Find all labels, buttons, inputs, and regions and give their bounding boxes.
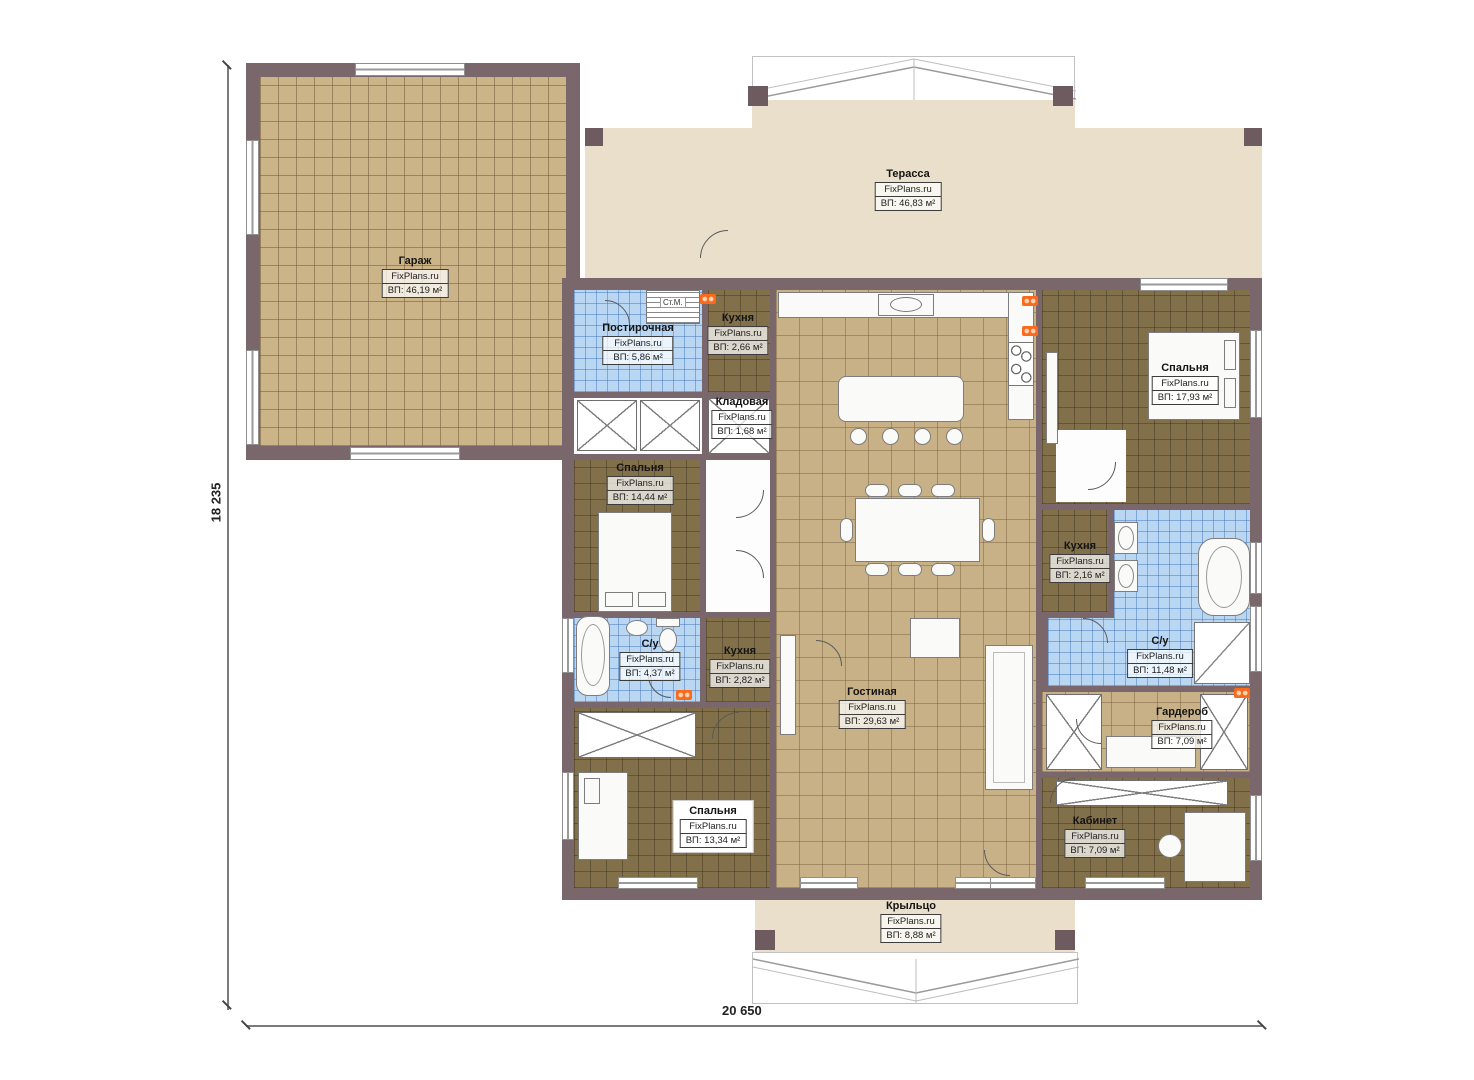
bathtub-right-basin <box>1206 546 1242 608</box>
room-label-kitchen-right: Кухня FixPlans.ru ВП: 2,16 м² <box>1049 540 1110 583</box>
room-label-living: Гостиная FixPlans.ru ВП: 29,63 м² <box>839 686 906 729</box>
room-label-office: Кабинет FixPlans.ru ВП: 7,09 м² <box>1064 815 1125 858</box>
brand-label: FixPlans.ru <box>880 914 941 929</box>
room-area: ВП: 14,44 м² <box>607 491 674 505</box>
room-label-terrace: Терасса FixPlans.ru ВП: 46,83 м² <box>875 168 942 211</box>
dining-chair <box>931 484 955 497</box>
room-name: Кабинет <box>1064 815 1125 827</box>
room-label-laundry: Постирочная FixPlans.ru ВП: 5,86 м² <box>602 322 673 365</box>
brand-label: FixPlans.ru <box>875 182 942 197</box>
room-name: Спальня <box>1152 362 1219 374</box>
room-label-pantry: Кладовая FixPlans.ru ВП: 1,68 м² <box>711 396 772 439</box>
corridor-floor <box>706 460 770 612</box>
office-window-side <box>1250 795 1262 861</box>
office-desk <box>1184 812 1246 882</box>
bathtub-left-basin <box>581 624 605 686</box>
room-label-porch: Крыльцо FixPlans.ru ВП: 8,88 м² <box>880 900 941 943</box>
pillow <box>638 592 666 607</box>
dimension-width-label: 20 650 <box>722 1003 762 1018</box>
floor-plan: 18 235 20 650 <box>0 0 1474 1080</box>
bedroom-bottom-window <box>618 877 698 889</box>
room-name: Кухня <box>707 312 768 324</box>
radiator <box>1022 296 1038 306</box>
bedroom-bottom-window-left <box>562 772 574 840</box>
room-name: Кухня <box>709 645 770 657</box>
brand-label: FixPlans.ru <box>619 652 680 667</box>
sink-right-2-basin <box>1118 564 1134 588</box>
room-area: ВП: 1,68 м² <box>711 425 772 439</box>
brand-label: FixPlans.ru <box>602 336 673 351</box>
room-label-bathroom-right: С/у FixPlans.ru ВП: 11,48 м² <box>1127 635 1193 678</box>
room-label-wardrobe: Гардероб FixPlans.ru ВП: 7,09 м² <box>1151 706 1212 749</box>
dimension-line-vertical <box>227 65 229 1010</box>
room-area: ВП: 4,37 м² <box>619 667 680 681</box>
dining-chair <box>865 563 889 576</box>
room-name: Спальня <box>680 805 747 817</box>
pillow <box>605 592 633 607</box>
office-window <box>1085 877 1165 889</box>
garage-window-left-upper <box>246 140 259 235</box>
pillow <box>1224 340 1236 370</box>
terrace-post <box>1053 86 1073 106</box>
bathroom-right-floor-ext <box>1048 618 1114 686</box>
room-name: С/у <box>1127 635 1193 647</box>
garage-window-top <box>355 63 465 76</box>
bathroom-left-window <box>562 618 574 673</box>
brand-label: FixPlans.ru <box>1064 829 1125 844</box>
brand-label: FixPlans.ru <box>709 659 770 674</box>
radiator <box>1234 688 1250 698</box>
room-name: Спальня <box>607 462 674 474</box>
office-shelf-xbox <box>1056 780 1228 806</box>
coffee-table <box>910 618 960 658</box>
porch-post <box>1055 930 1075 950</box>
sink-right-1-basin <box>1118 526 1134 550</box>
porch-door-opening <box>990 877 1036 889</box>
living-window-1 <box>800 877 858 889</box>
room-name: Гостиная <box>839 686 906 698</box>
tv-stand <box>780 635 796 735</box>
terrace-post <box>748 86 768 106</box>
dining-chair <box>898 484 922 497</box>
dining-chair <box>982 518 995 542</box>
bedroom-bottom-closet-xbox <box>578 712 696 758</box>
room-area: ВП: 8,88 м² <box>880 929 941 943</box>
brand-label: FixPlans.ru <box>607 476 674 491</box>
room-area: ВП: 2,82 м² <box>709 674 770 688</box>
room-area: ВП: 2,16 м² <box>1049 569 1110 583</box>
terrace-roof-outline <box>752 56 1075 102</box>
room-name: Крыльцо <box>880 900 941 912</box>
kitchen-island <box>838 376 964 422</box>
shower <box>1194 622 1250 684</box>
room-name: Гардероб <box>1151 706 1212 718</box>
bathroom-right-window-2 <box>1250 606 1262 672</box>
brand-label: FixPlans.ru <box>382 269 449 284</box>
bedroom-right-window-side <box>1250 330 1262 418</box>
room-name: Кладовая <box>711 396 772 408</box>
room-label-bedroom-left: Спальня FixPlans.ru ВП: 14,44 м² <box>607 462 674 505</box>
dresser <box>1046 352 1058 444</box>
brand-label: FixPlans.ru <box>1049 554 1110 569</box>
brand-label: FixPlans.ru <box>1127 649 1193 664</box>
porch-post <box>755 930 775 950</box>
bar-stool <box>850 428 867 445</box>
brand-label: FixPlans.ru <box>711 410 772 425</box>
room-area: ВП: 13,34 м² <box>680 834 747 848</box>
dining-chair <box>865 484 889 497</box>
terrace-post <box>585 128 603 146</box>
room-area: ВП: 46,19 м² <box>382 284 449 298</box>
terrace-post <box>1244 128 1262 146</box>
brand-label: FixPlans.ru <box>839 700 906 715</box>
washing-machine-label: Ст.М. <box>660 297 686 308</box>
terrace-floor-left <box>585 128 755 285</box>
room-label-bedroom-bottom: Спальня FixPlans.ru ВП: 13,34 м² <box>673 800 754 853</box>
room-name: Терасса <box>875 168 942 180</box>
toilet-tank <box>656 618 680 627</box>
garage-window-bottom <box>350 447 460 460</box>
pillow <box>1224 378 1236 408</box>
bar-stool <box>882 428 899 445</box>
room-label-bedroom-right: Спальня FixPlans.ru ВП: 17,93 м² <box>1152 362 1219 405</box>
terrace-floor-right <box>1072 128 1262 285</box>
bedroom-right-window <box>1140 278 1228 291</box>
room-area: ВП: 7,09 м² <box>1151 735 1212 749</box>
brand-label: FixPlans.ru <box>1152 376 1219 391</box>
porch-roof-outline <box>752 952 1078 1004</box>
terrace-roof-lines <box>753 57 1076 103</box>
closet-xbox <box>640 400 700 451</box>
room-area: ВП: 17,93 м² <box>1152 391 1219 405</box>
room-area: ВП: 5,86 м² <box>602 351 673 365</box>
room-area: ВП: 2,66 м² <box>707 341 768 355</box>
closet-xbox <box>577 400 637 451</box>
sink-left-bath <box>626 620 648 636</box>
room-area: ВП: 11,48 м² <box>1127 664 1193 678</box>
radiator <box>676 690 692 700</box>
dining-table <box>855 498 980 562</box>
dining-chair <box>898 563 922 576</box>
porch-roof-lines <box>753 953 1079 1005</box>
room-name: Постирочная <box>602 322 673 334</box>
dining-chair <box>931 563 955 576</box>
room-area: ВП: 29,63 м² <box>839 715 906 729</box>
room-label-kitchen-top: Кухня FixPlans.ru ВП: 2,66 м² <box>707 312 768 355</box>
dimension-height-label: 18 235 <box>208 483 223 523</box>
room-name: Кухня <box>1049 540 1110 552</box>
bar-stool <box>946 428 963 445</box>
dining-chair <box>840 518 853 542</box>
room-name: С/у <box>619 638 680 650</box>
radiator <box>1022 326 1038 336</box>
radiator <box>700 294 716 304</box>
room-area: ВП: 7,09 м² <box>1064 844 1125 858</box>
stove-icon <box>1008 342 1034 386</box>
dimension-line-horizontal <box>246 1025 1262 1027</box>
room-label-bathroom-left: С/у FixPlans.ru ВП: 4,37 м² <box>619 638 680 681</box>
room-name: Гараж <box>382 255 449 267</box>
brand-label: FixPlans.ru <box>707 326 768 341</box>
brand-label: FixPlans.ru <box>1151 720 1212 735</box>
room-area: ВП: 46,83 м² <box>875 197 942 211</box>
brand-label: FixPlans.ru <box>680 819 747 834</box>
bathroom-right-window-1 <box>1250 542 1262 594</box>
kitchen-sink-basin <box>890 297 922 312</box>
sofa-cushions <box>993 652 1025 783</box>
room-label-garage: Гараж FixPlans.ru ВП: 46,19 м² <box>382 255 449 298</box>
garage-window-left-lower <box>246 350 259 445</box>
pillow <box>584 778 600 804</box>
bar-stool <box>914 428 931 445</box>
room-label-kitchen-mid: Кухня FixPlans.ru ВП: 2,82 м² <box>709 645 770 688</box>
office-chair <box>1158 834 1182 858</box>
